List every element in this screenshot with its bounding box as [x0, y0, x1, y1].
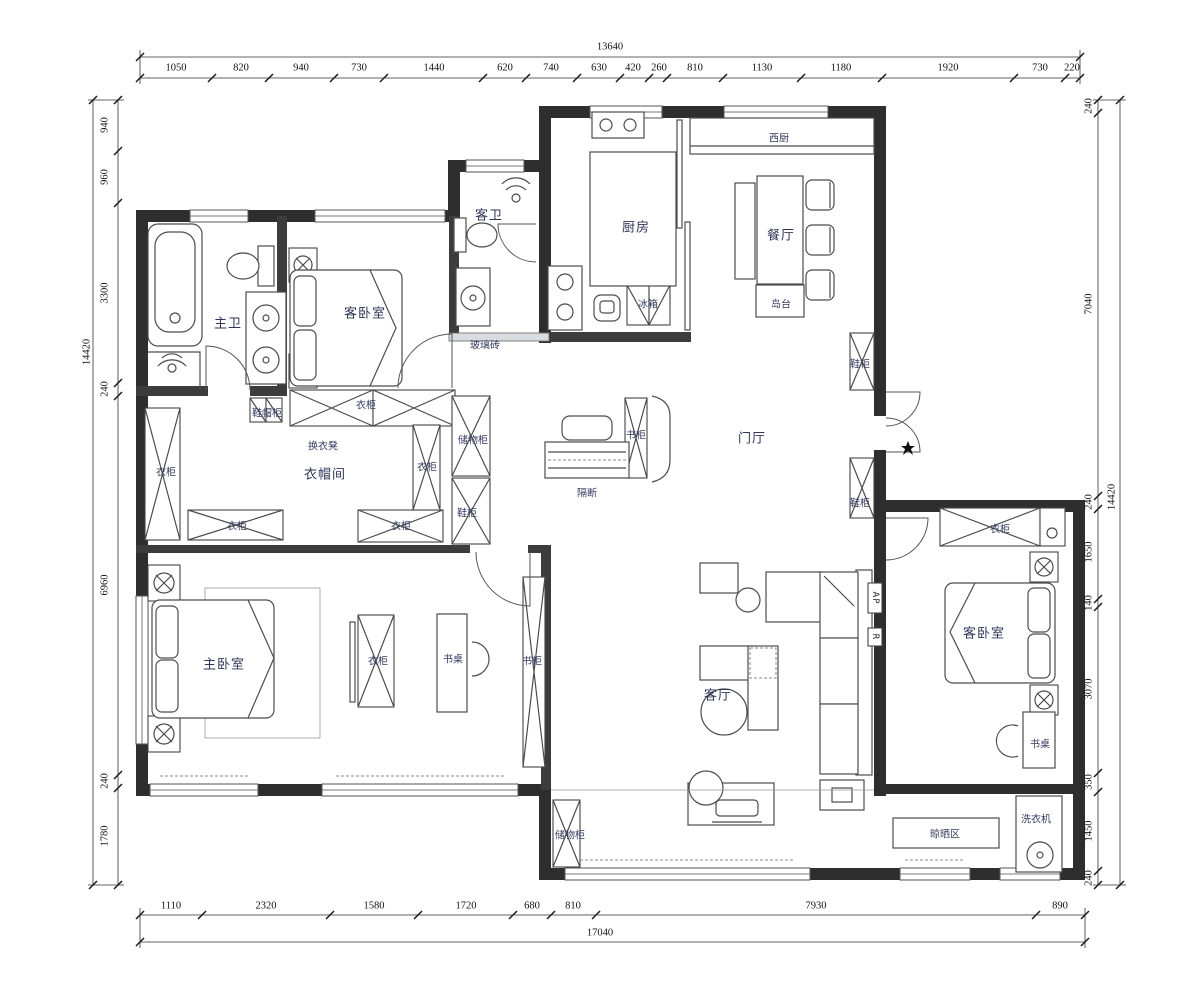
label-wardrobe: 衣柜	[990, 521, 1010, 536]
label-washer: 洗衣机	[1021, 811, 1051, 826]
label-storage-cabinet: 储物柜	[555, 827, 585, 842]
label-bookcase: 书柜	[522, 653, 542, 668]
label-changing-stool: 换衣凳	[308, 438, 338, 453]
label-wardrobe: 衣柜	[417, 459, 437, 474]
dim-left-seg: 960	[100, 169, 111, 185]
room-label-dining: 餐厅	[767, 225, 795, 244]
dim-top-seg: 630	[591, 63, 607, 74]
room-label-guest-bedroom-right: 客卧室	[963, 623, 1005, 642]
room-label-west-kitchen: 西厨	[769, 130, 789, 145]
label-partition: 隔断	[577, 485, 597, 500]
room-label-master-bedroom: 主卧室	[203, 654, 245, 673]
dim-right-seg: 1450	[1084, 821, 1095, 842]
dim-top-seg: 620	[497, 63, 513, 74]
dim-left-seg: 240	[100, 381, 111, 397]
dim-right-seg: 240	[1084, 494, 1095, 510]
label-wardrobe: 衣柜	[391, 518, 411, 533]
dim-left-seg: 940	[100, 117, 111, 133]
room-label-drying-area: 晾晒区	[930, 826, 960, 841]
label-shoe-cabinet: 鞋柜	[850, 495, 870, 510]
dim-bottom-seg: 2320	[256, 901, 277, 912]
dim-top-seg: 820	[233, 63, 249, 74]
dim-top-seg: 810	[687, 63, 703, 74]
label-bookcase: 书柜	[626, 427, 646, 442]
label-shoe-cabinet: 鞋柜	[457, 505, 477, 520]
dim-right-total: 14420	[1107, 484, 1118, 510]
dim-right-seg: 7040	[1084, 294, 1095, 315]
dim-right-seg: 240	[1084, 870, 1095, 886]
label-fridge: 冰箱	[638, 296, 658, 311]
dim-left-seg: 240	[100, 773, 111, 789]
dim-left-total: 14420	[82, 339, 93, 365]
room-label-guest-bath: 客卫	[475, 205, 503, 224]
dim-top-seg: 260	[651, 63, 667, 74]
room-label-cloakroom: 衣帽间	[304, 464, 346, 483]
dim-top-seg: 940	[293, 63, 309, 74]
dim-bottom-total: 17040	[587, 928, 613, 939]
entry-marker-icon	[901, 441, 915, 455]
dim-bottom-seg: 890	[1052, 901, 1068, 912]
label-r-mark: R	[870, 634, 880, 641]
dim-left-seg: 3300	[100, 283, 111, 304]
label-wardrobe: 衣柜	[368, 653, 388, 668]
dim-top-seg: 1920	[938, 63, 959, 74]
dim-right-seg: 240	[1084, 98, 1095, 114]
dim-top-seg: 1180	[831, 63, 852, 74]
label-wardrobe: 衣柜	[156, 464, 176, 479]
dim-bottom-seg: 810	[565, 901, 581, 912]
dim-top-seg: 420	[625, 63, 641, 74]
dim-right-seg: 350	[1084, 774, 1095, 790]
dim-bottom-seg: 7930	[806, 901, 827, 912]
dim-left-seg: 6960	[100, 575, 111, 596]
label-wardrobe: 衣柜	[356, 397, 376, 412]
room-label-guest-bedroom-top: 客卧室	[344, 303, 386, 322]
dim-right-seg: 3070	[1084, 679, 1095, 700]
dim-top-seg: 220	[1064, 63, 1080, 74]
label-desk: 书桌	[443, 651, 463, 666]
label-shoe-cabinet: 鞋柜	[850, 356, 870, 371]
room-label-living: 客厅	[704, 685, 732, 704]
dim-top-seg: 730	[1032, 63, 1048, 74]
label-wardrobe: 衣柜	[227, 518, 247, 533]
dim-bottom-seg: 1110	[161, 901, 181, 912]
dim-bottom-seg: 1720	[456, 901, 477, 912]
label-island: 岛台	[771, 296, 791, 311]
label-hat-cabinet: 鞋帽柜	[252, 405, 282, 420]
floor-plan-canvas: 13640 1050 820 940 730 1440 620 740 630 …	[0, 0, 1200, 1000]
dim-top-seg: 1050	[166, 63, 187, 74]
label-desk: 书桌	[1030, 736, 1050, 751]
dim-bottom-seg: 680	[524, 901, 540, 912]
dim-top-seg: 730	[351, 63, 367, 74]
room-label-kitchen: 厨房	[622, 217, 650, 236]
label-storage-cabinet: 储物柜	[458, 432, 488, 447]
dim-right-seg: 1650	[1084, 542, 1095, 563]
dim-right-seg: 140	[1084, 595, 1095, 611]
room-label-foyer: 门厅	[738, 428, 766, 447]
label-glass-brick: 玻璃砖	[470, 337, 500, 352]
label-ap-mark: AP	[870, 592, 880, 605]
floor-plan-drawing	[0, 0, 1200, 1000]
dim-left-seg: 1780	[100, 826, 111, 847]
dim-bottom-seg: 1580	[364, 901, 385, 912]
dim-top-seg: 1130	[752, 63, 773, 74]
dim-top-seg: 1440	[424, 63, 445, 74]
dim-top-total: 13640	[597, 42, 623, 53]
room-label-master-bath: 主卫	[214, 313, 242, 332]
dim-top-seg: 740	[543, 63, 559, 74]
